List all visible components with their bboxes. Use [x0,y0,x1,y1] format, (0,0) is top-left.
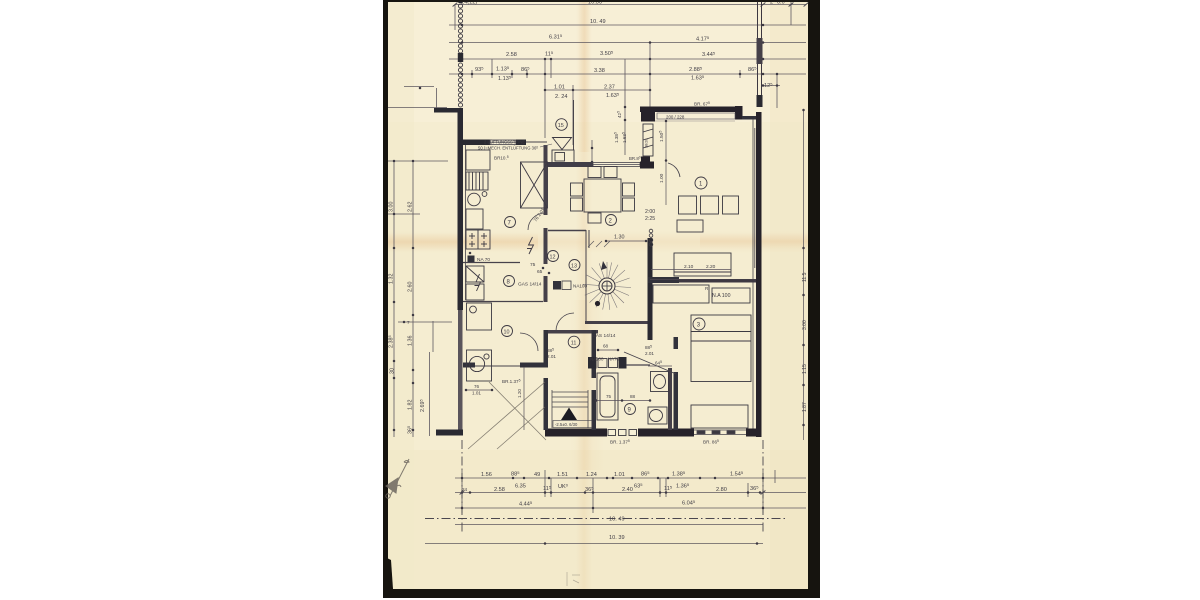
svg-text:30: 30 [390,368,396,374]
svg-text:1.24: 1.24 [586,472,597,478]
svg-text:65: 65 [537,269,543,275]
svg-text:49: 49 [534,472,540,478]
svg-text:BR.1.375: BR.1.375 [502,379,521,384]
svg-text:76: 76 [474,384,480,389]
svg-text:2:25: 2:25 [645,216,655,222]
svg-text:BR10.5: BR10.5 [494,155,509,160]
svg-text:3.38: 3.38 [594,68,605,74]
svg-text:GAS 14/14: GAS 14/14 [592,333,616,339]
svg-text:2.62: 2.62 [408,202,414,213]
svg-text:7: 7 [407,320,410,325]
svg-text:11: 11 [571,341,577,347]
svg-text:2.01: 2.01 [547,354,556,359]
svg-text:68: 68 [603,344,609,349]
svg-text:10. 49: 10. 49 [590,19,606,25]
svg-text:2.60: 2.60 [408,282,414,293]
svg-text:1.30: 1.30 [614,235,625,241]
svg-text:2:00: 2:00 [645,209,655,215]
svg-text:3.00: 3.00 [389,202,395,213]
svg-text:2.01: 2.01 [645,351,654,356]
svg-text:GAS 14/14: GAS 14/14 [518,282,542,288]
svg-text:2.80: 2.80 [716,487,727,493]
svg-text:2.58: 2.58 [506,52,517,58]
svg-text:10: 10 [504,330,510,336]
svg-text:88: 88 [630,394,636,399]
svg-text:10. 49: 10. 49 [609,517,625,523]
svg-text:13: 13 [571,264,577,270]
svg-text:200 / 228: 200 / 228 [666,115,685,120]
svg-text:1.36: 1.36 [408,336,414,347]
svg-text:10. 39: 10. 39 [609,535,625,541]
svg-text:NA70: NA70 [608,357,620,362]
svg-text:1.00: 1.00 [659,173,665,183]
svg-text:BR. 675: BR. 675 [694,101,710,106]
svg-text:1.32: 1.32 [389,274,395,285]
svg-text:11.5: 11.5 [802,272,808,282]
svg-text:NA100: NA100 [590,357,604,362]
svg-text:2.20: 2.20 [706,264,716,270]
svg-text:6.35: 6.35 [515,484,526,490]
svg-text:1.01: 1.01 [614,472,625,478]
svg-text:15: 15 [558,123,564,129]
svg-text:N.A 100: N.A 100 [712,293,731,299]
svg-text:NA 70: NA 70 [477,257,490,263]
svg-text:50 (=MECH. ENTLÜFTUNG 360: 50 (=MECH. ENTLÜFTUNG 360 [478,145,538,150]
svg-text:1.51: 1.51 [557,472,568,478]
svg-text:2.10: 2.10 [684,264,694,270]
svg-text:38/28: 38/28 [645,138,649,148]
svg-text:1.15: 1.15 [802,364,808,374]
svg-text:75: 75 [530,262,536,268]
svg-text:2.40: 2.40 [622,487,633,493]
svg-text:1.56: 1.56 [481,472,492,478]
svg-text:2.58: 2.58 [494,487,505,493]
svg-text:1.01: 1.01 [472,391,481,396]
svg-text:24: 24 [462,487,468,492]
svg-text:2. 24: 2. 24 [555,94,567,100]
svg-text:3.00: 3.00 [802,320,808,330]
svg-text:BR. 1.375: BR. 1.375 [610,439,630,444]
svg-text:2.37: 2.37 [604,85,615,91]
svg-text:1.82: 1.82 [408,400,414,411]
svg-text:-2.5±0. 6/30: -2.5±0. 6/30 [555,422,578,427]
svg-text:1.87: 1.87 [802,402,808,412]
svg-text:75: 75 [606,394,612,399]
svg-text:2 LÜFTUNGSSTEINE: 2 LÜFTUNGSSTEINE [484,140,525,145]
svg-text:1.20: 1.20 [517,389,522,398]
svg-text:12: 12 [550,255,556,261]
svg-text:1.01: 1.01 [554,85,565,91]
svg-text:BR. 865: BR. 865 [703,439,719,444]
